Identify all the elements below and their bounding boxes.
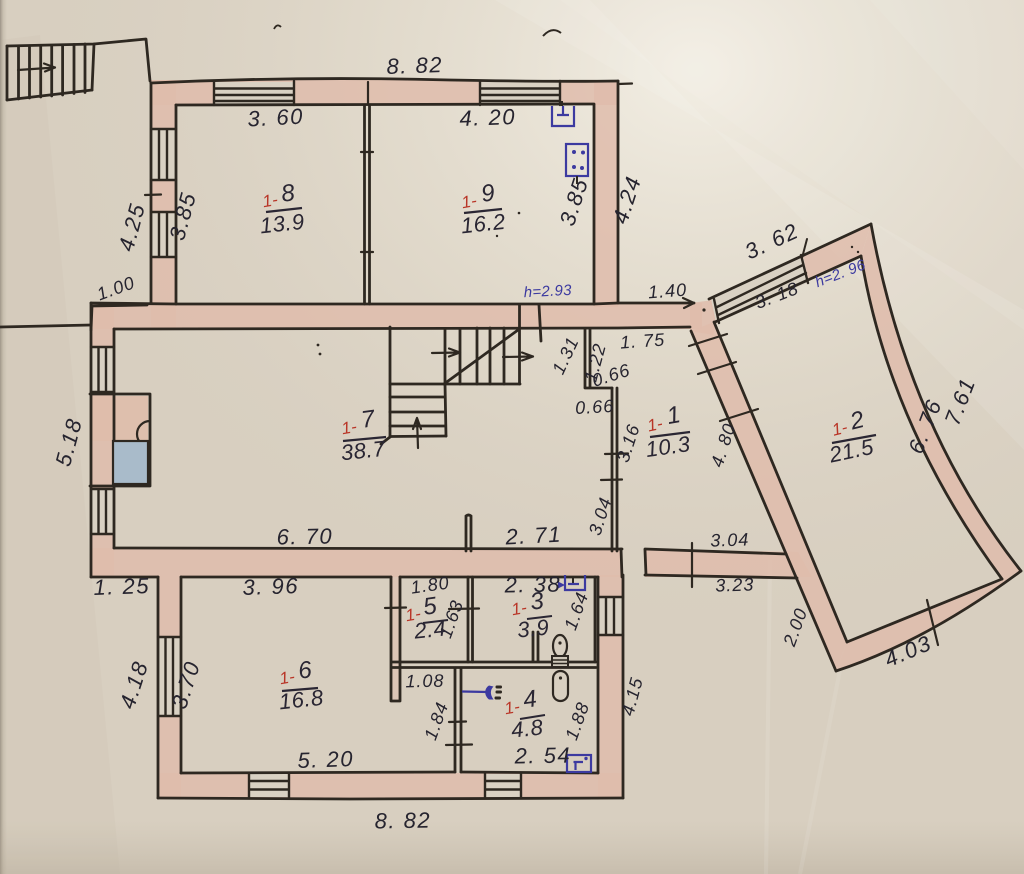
svg-text:1.08: 1.08 bbox=[405, 671, 444, 692]
svg-text:3. 96: 3. 96 bbox=[242, 573, 299, 600]
svg-text:4.8: 4.8 bbox=[510, 714, 545, 742]
svg-text:2.4: 2.4 bbox=[412, 615, 448, 643]
svg-text:13.9: 13.9 bbox=[259, 209, 306, 239]
svg-text:2. 54: 2. 54 bbox=[513, 743, 571, 769]
svg-text:8. 82: 8. 82 bbox=[386, 52, 443, 79]
svg-text:3.04: 3.04 bbox=[710, 529, 750, 550]
svg-text:3. 60: 3. 60 bbox=[247, 104, 305, 132]
svg-text:1. 75: 1. 75 bbox=[619, 329, 665, 352]
svg-text:5. 20: 5. 20 bbox=[297, 746, 354, 773]
svg-text:8. 82: 8. 82 bbox=[374, 808, 431, 834]
svg-text:h=2.93: h=2.93 bbox=[523, 282, 572, 302]
svg-text:16.8: 16.8 bbox=[278, 685, 325, 715]
svg-text:1.40: 1.40 bbox=[647, 280, 687, 303]
svg-text:3.9: 3.9 bbox=[516, 614, 551, 642]
svg-text:0.66: 0.66 bbox=[575, 396, 615, 418]
svg-text:6. 70: 6. 70 bbox=[276, 524, 333, 550]
svg-text:16.2: 16.2 bbox=[460, 209, 507, 239]
svg-text:1. 25: 1. 25 bbox=[93, 573, 150, 600]
svg-text:38.7: 38.7 bbox=[340, 436, 387, 466]
svg-text:3.23: 3.23 bbox=[715, 574, 755, 595]
svg-text:2. 71: 2. 71 bbox=[504, 522, 563, 550]
svg-text:4. 20: 4. 20 bbox=[459, 104, 516, 131]
